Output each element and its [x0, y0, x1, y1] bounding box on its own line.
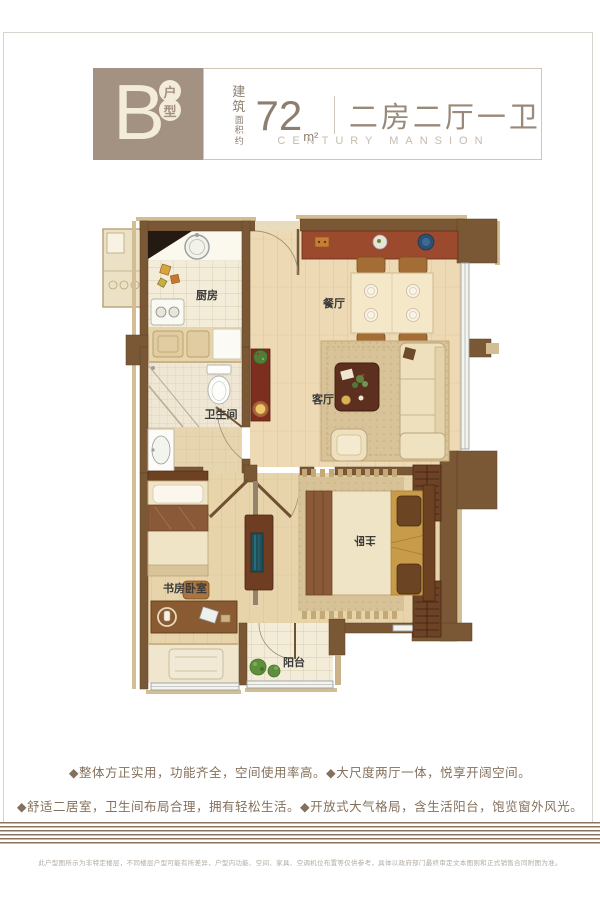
master-pillow-bottom	[397, 564, 421, 594]
layout-title: 二房二厅一卫	[349, 94, 541, 136]
room-label-bath: 卫生间	[205, 407, 238, 421]
hallway-cabinet	[251, 349, 270, 421]
room-label-dining: 餐厅	[322, 296, 345, 310]
ac-bracket-outer	[486, 343, 499, 354]
wall-balcony-left	[239, 623, 247, 685]
wall-top-dining	[300, 219, 463, 231]
wall-left-upper	[140, 221, 148, 347]
wall-corner-se-living	[457, 451, 497, 509]
wall-balcony-right-thin	[335, 655, 341, 685]
header-subtitle: CENTURY MANSION	[234, 135, 533, 147]
room-label-master: 主卧	[354, 534, 376, 548]
floorplan: 厨房 卫生间	[95, 215, 500, 740]
feature-bullets: ◆整体方正实用，功能齐全，空间使用率高。◆大尺度两厅一体，悦享开阔空间。 ◆舒适…	[0, 762, 600, 830]
feature-line-1: ◆整体方正实用，功能齐全，空间使用率高。◆大尺度两厅一体，悦享开阔空间。	[0, 762, 600, 781]
tv-screen	[251, 533, 263, 572]
wall-master-right	[440, 451, 457, 641]
room-label-balcony: 阳台	[283, 655, 305, 669]
bay-table	[169, 649, 223, 679]
unit-letter: B	[113, 62, 165, 162]
sofa	[400, 343, 445, 459]
wall-left-mid	[140, 347, 148, 473]
wall-left-lower	[140, 473, 148, 689]
armchair	[331, 429, 367, 461]
ac-platform	[103, 229, 143, 307]
room-label-kitchen: 厨房	[196, 288, 218, 302]
wall-corner-ne	[457, 219, 497, 263]
area-prefix-line1: 建筑	[232, 85, 248, 115]
single-bed	[148, 471, 208, 576]
room-label-living: 客厅	[311, 392, 334, 406]
area-value: 72	[256, 97, 303, 135]
washer-units	[153, 329, 241, 359]
cabinet-plant	[254, 350, 268, 364]
unit-tag-hu: 户	[159, 80, 181, 102]
toilet	[207, 365, 231, 404]
wall-door-post	[244, 465, 257, 482]
wall-top-kitchen	[140, 221, 255, 231]
header-divider	[334, 96, 335, 134]
sideboard	[302, 231, 458, 259]
unit-tag-circles: 户 型	[159, 80, 183, 118]
header: B 户 型 建筑 面积约 72 m² 二房二厅一卫 CENTURY MANSIO…	[93, 68, 508, 160]
kitchen-stove	[151, 299, 184, 325]
wall-bath-partition	[242, 347, 250, 427]
wall-kitchen-partition	[242, 221, 250, 347]
cabinet-lamp	[256, 404, 266, 414]
unit-type-badge: B 户 型	[93, 68, 203, 160]
room-label-study: 书房卧室	[163, 581, 207, 595]
disclaimer-text: 此户型图所示为非特定楼层，不同楼层户型可能有所差异，户型内功能、空间、家具、空调…	[0, 857, 600, 867]
master-headboard	[423, 485, 435, 601]
striped-divider-band	[0, 822, 600, 845]
wash-basin	[148, 429, 174, 471]
feature-line-2: ◆舒适二居室，卫生间布局合理，拥有轻松生活。◆开放式大气格局，含生活阳台，饱览窗…	[0, 796, 600, 815]
coffee-table	[335, 363, 379, 411]
floorplan-svg: 厨房 卫生间	[95, 215, 500, 735]
header-info: 建筑 面积约 72 m² 二房二厅一卫 CENTURY MANSION	[203, 68, 542, 160]
wall-balcony-column	[329, 619, 345, 655]
master-pillow-top	[397, 496, 421, 526]
unit-tag-xing: 型	[159, 99, 181, 121]
